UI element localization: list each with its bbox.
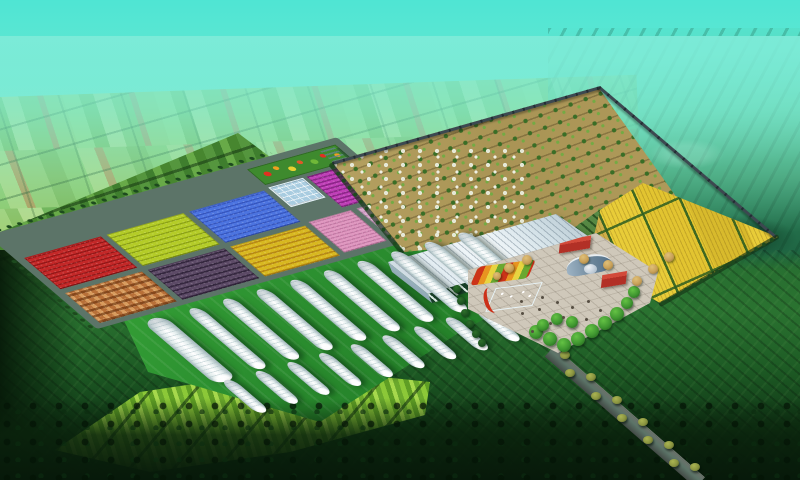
ornamental-tree: [603, 260, 613, 270]
roadside-tree: [560, 351, 570, 359]
ornamental-tree: [579, 254, 589, 264]
roadside-tree: [690, 463, 700, 471]
roadside-tree: [591, 392, 601, 400]
visitor-dot: [571, 306, 574, 309]
broadleaf-tree: [557, 338, 571, 352]
roadside-tree: [617, 414, 627, 422]
ornamental-tree: [522, 255, 532, 265]
visitor-dot: [549, 322, 552, 325]
visitor-dot: [556, 301, 559, 304]
ornamental-tree: [632, 276, 642, 286]
broadleaf-tree: [585, 324, 599, 338]
visitor-dot: [562, 316, 565, 319]
conifer-tree: [457, 297, 465, 305]
ornamental-tree: [648, 264, 658, 274]
conifer-tree: [466, 320, 474, 328]
conifer-tree: [478, 339, 486, 347]
broadleaf-tree: [571, 332, 585, 346]
roadside-tree: [669, 459, 679, 467]
broadleaf-tree: [537, 319, 549, 331]
visitor-dot: [541, 296, 544, 299]
visitor-dot: [531, 330, 534, 333]
conifer-tree: [472, 330, 480, 338]
visitor-dot: [599, 309, 602, 312]
broadleaf-tree: [628, 286, 640, 298]
broadleaf-tree: [566, 316, 578, 328]
roadside-tree: [664, 441, 674, 449]
conifer-tree: [453, 285, 461, 293]
visitor-dot: [538, 308, 541, 311]
ornamental-tree: [664, 252, 674, 262]
visitor-dot: [520, 300, 523, 303]
dome: [584, 264, 597, 274]
visitor-dot: [521, 312, 524, 315]
broadleaf-tree: [598, 316, 612, 330]
roadside-tree: [612, 396, 622, 404]
conifer-tree: [461, 309, 469, 317]
visitor-dot: [585, 318, 588, 321]
broadleaf-tree: [621, 297, 633, 309]
ornamental-tree: [493, 272, 501, 280]
aerial-render: [0, 0, 800, 480]
broadleaf-tree: [610, 307, 624, 321]
visitor-dot: [587, 300, 590, 303]
broadleaf-tree: [551, 313, 563, 325]
broadleaf-tree: [543, 332, 557, 346]
ornamental-tree: [504, 263, 514, 273]
